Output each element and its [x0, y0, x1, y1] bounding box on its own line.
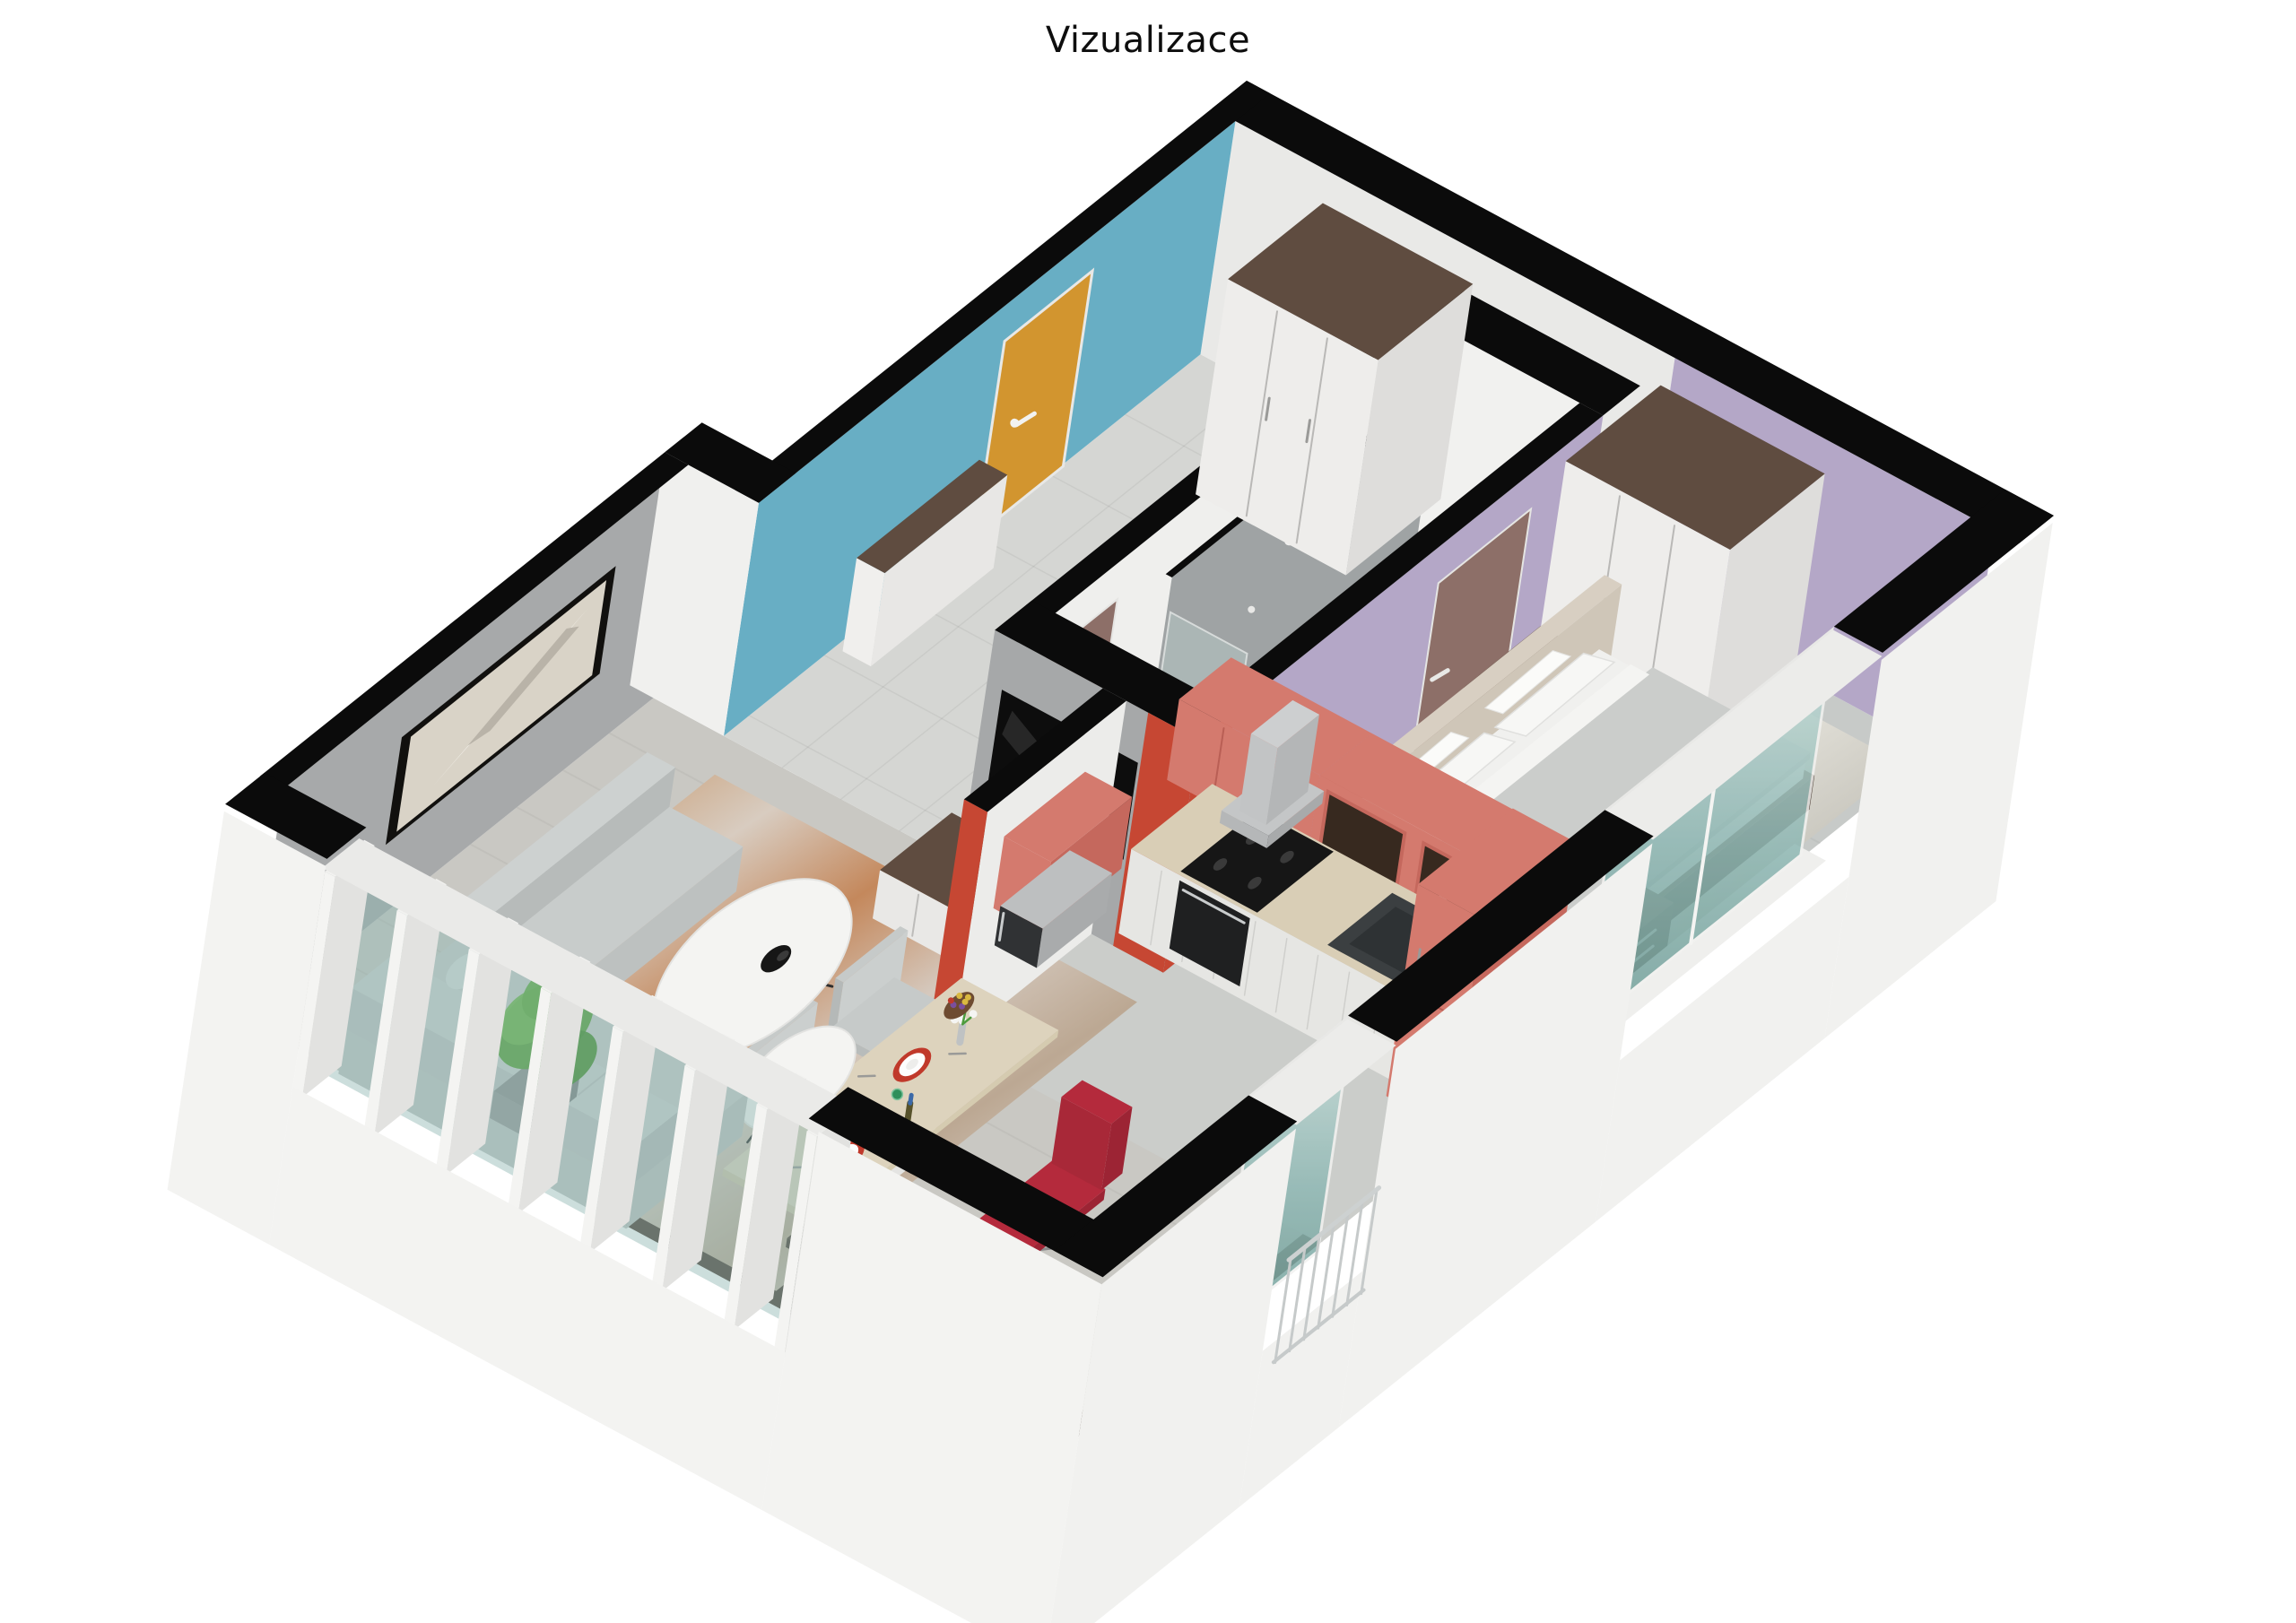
flower-vase — [960, 1024, 962, 1042]
floorplan-scene — [0, 0, 2296, 1623]
cutlery — [949, 1054, 965, 1055]
cutlery — [858, 1076, 874, 1077]
wine-bottle-cap — [910, 1095, 911, 1103]
floorplan-visualization: Vizualizace — [0, 0, 2296, 1623]
